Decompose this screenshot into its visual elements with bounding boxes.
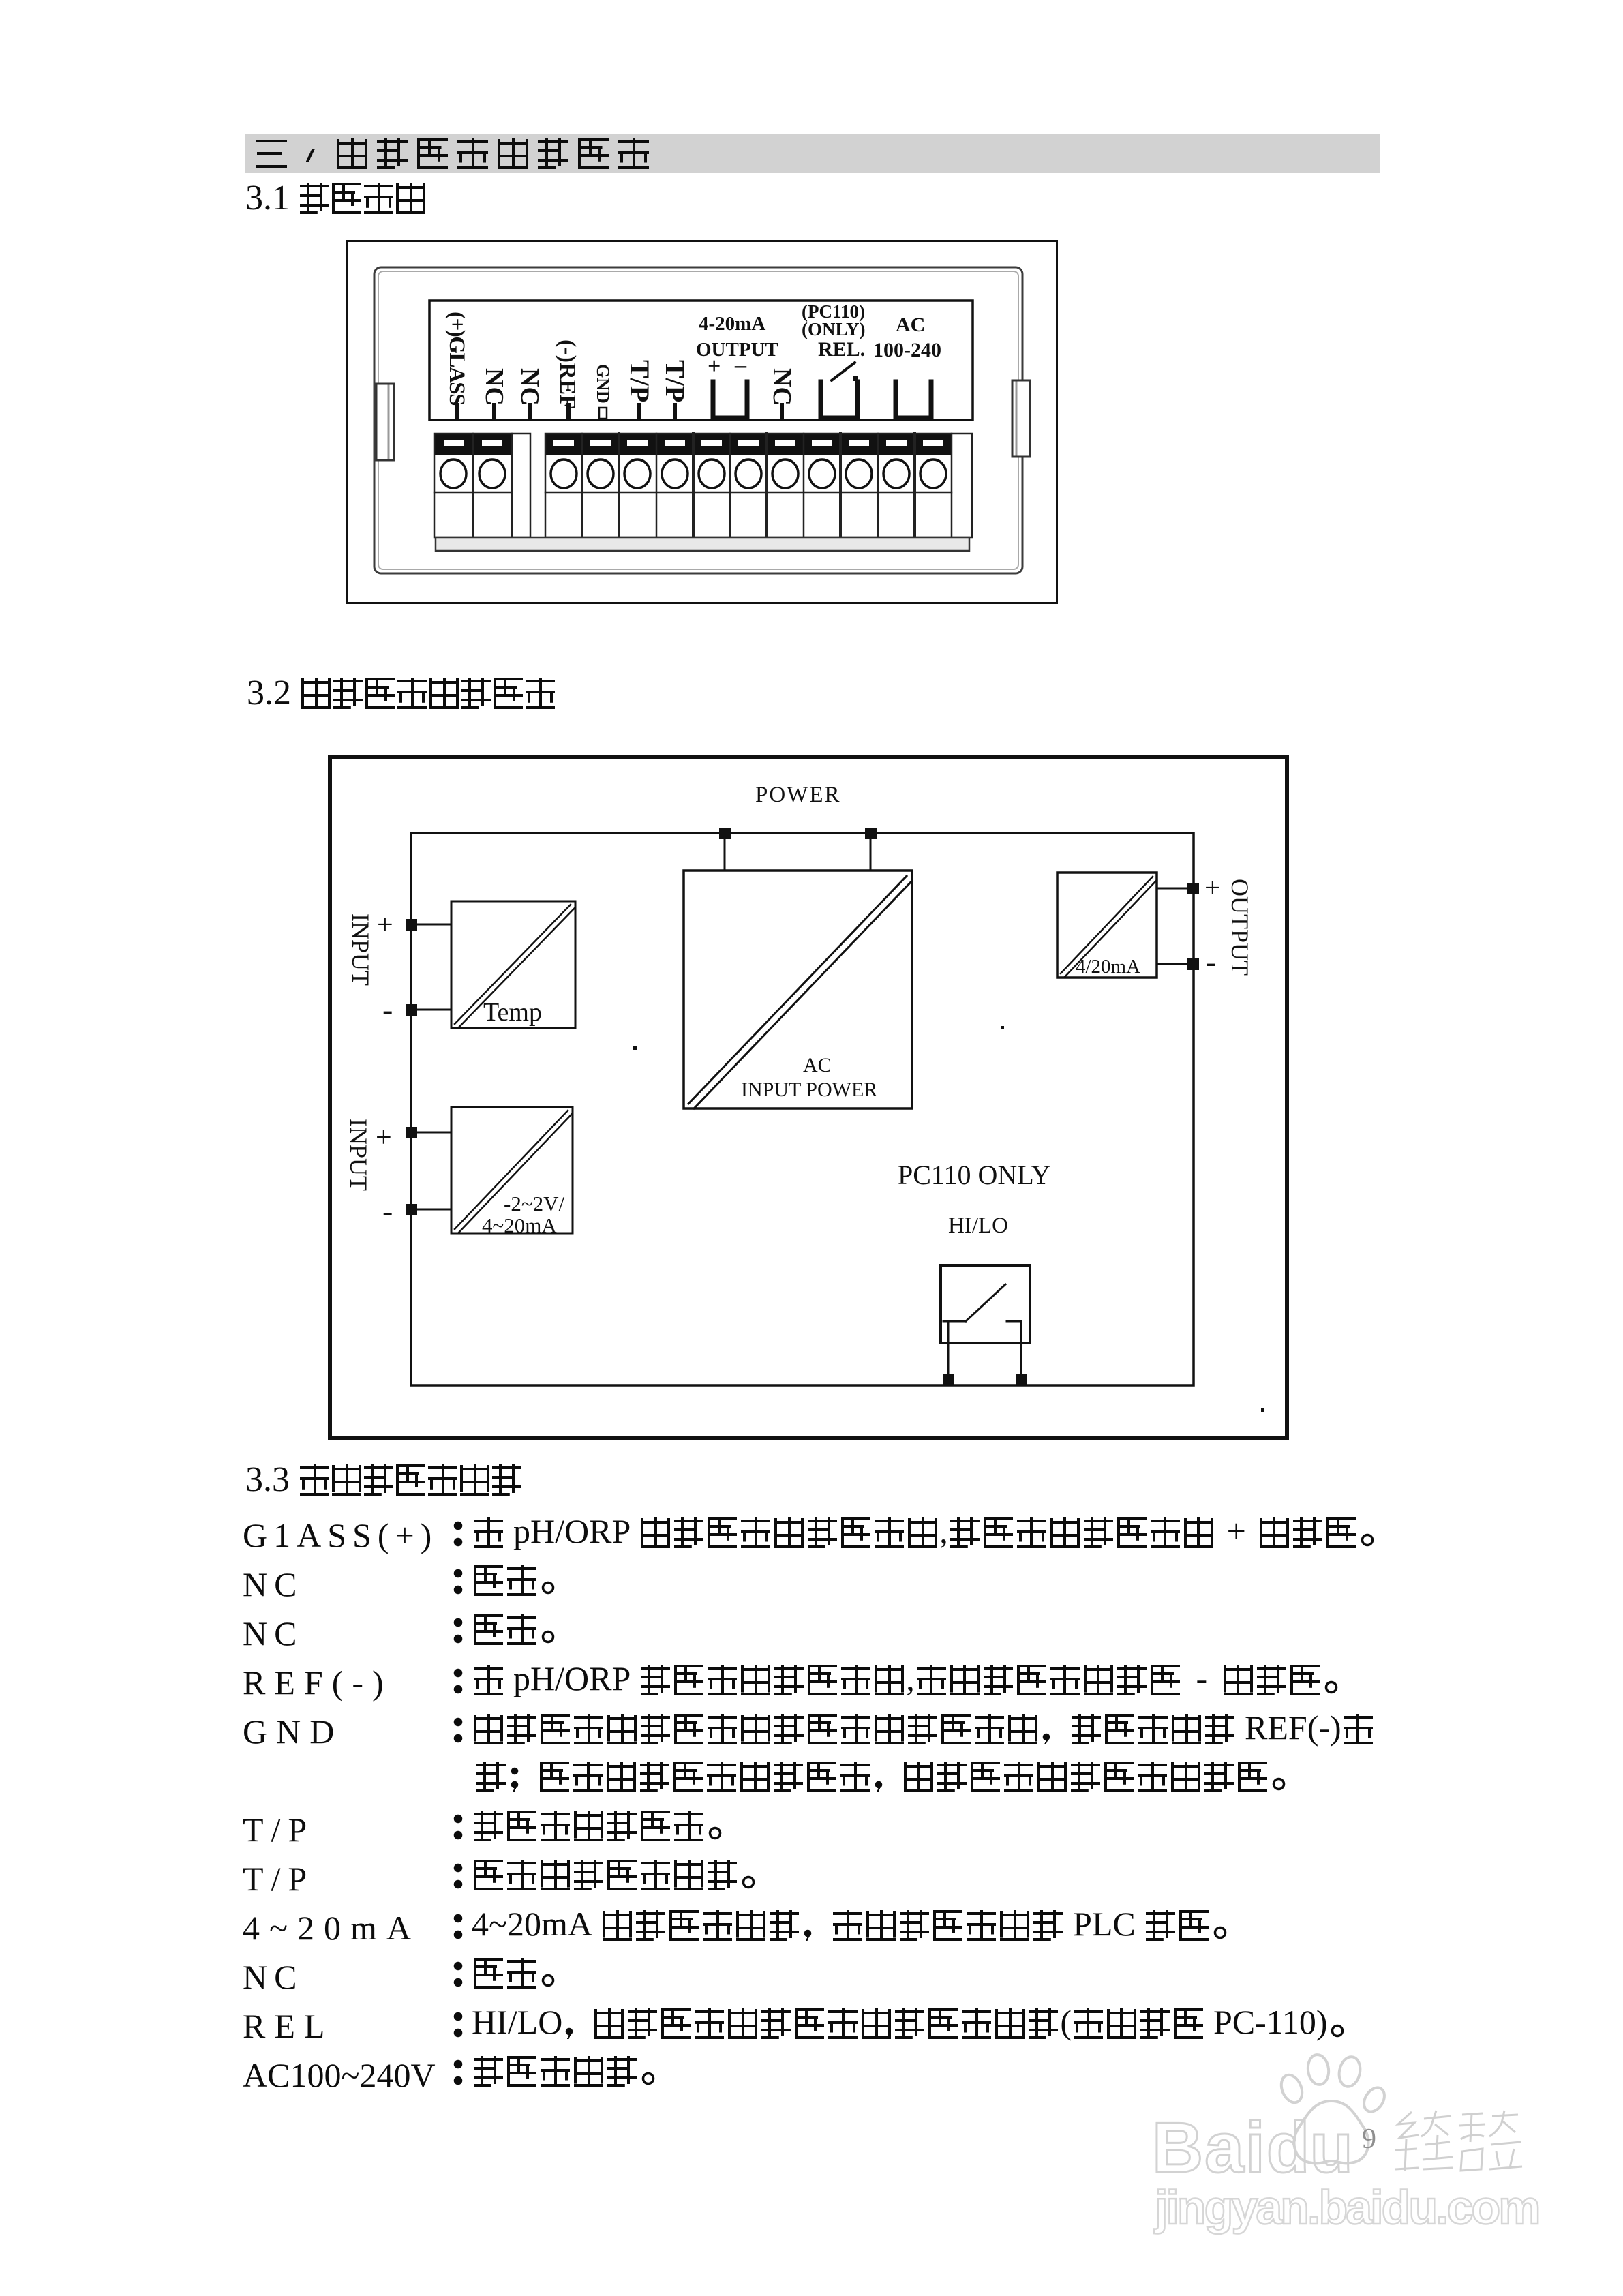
svg-text:AC: AC [803,1054,832,1076]
svg-text:(ONLY): (ONLY) [802,319,866,339]
svg-text:4-20mA: 4-20mA [699,313,765,335]
svg-text:-: - [382,992,393,1027]
svg-text:NC: NC [515,368,544,406]
svg-text:POWER: POWER [755,783,841,807]
svg-text:T/P: T/P [660,360,691,402]
svg-text:4/20mA: 4/20mA [1076,956,1140,978]
svg-text:-: - [1206,944,1216,979]
svg-text:-: - [382,1194,393,1228]
svg-text:T/P: T/P [624,360,655,402]
svg-text:+: + [377,909,393,941]
svg-text:REL.: REL. [818,338,865,361]
svg-text:100-240: 100-240 [873,339,941,361]
svg-text:INPUT POWER: INPUT POWER [741,1078,877,1101]
svg-text:GND: GND [593,364,613,404]
svg-text:+: + [1204,873,1221,904]
svg-text:–: – [734,352,747,378]
svg-text:INPUT: INPUT [345,1119,372,1191]
svg-text:NC: NC [768,368,796,406]
svg-text:PC110 ONLY: PC110 ONLY [898,1160,1051,1190]
svg-text:(+)GLASS: (+)GLASS [444,312,469,405]
svg-text:INPUT: INPUT [347,913,374,986]
svg-text:AC: AC [896,314,925,336]
svg-text:Temp: Temp [483,998,542,1027]
svg-text:HI/LO: HI/LO [948,1213,1008,1238]
svg-text:(-)REF: (-)REF [555,339,580,409]
svg-text:OUTPUT: OUTPUT [1226,879,1254,976]
svg-text:+: + [708,354,721,379]
svg-text:+: + [376,1122,392,1153]
svg-text:4~20mA: 4~20mA [482,1213,557,1237]
svg-text:-2~2V/: -2~2V/ [504,1192,564,1215]
svg-text:NC: NC [480,368,509,406]
